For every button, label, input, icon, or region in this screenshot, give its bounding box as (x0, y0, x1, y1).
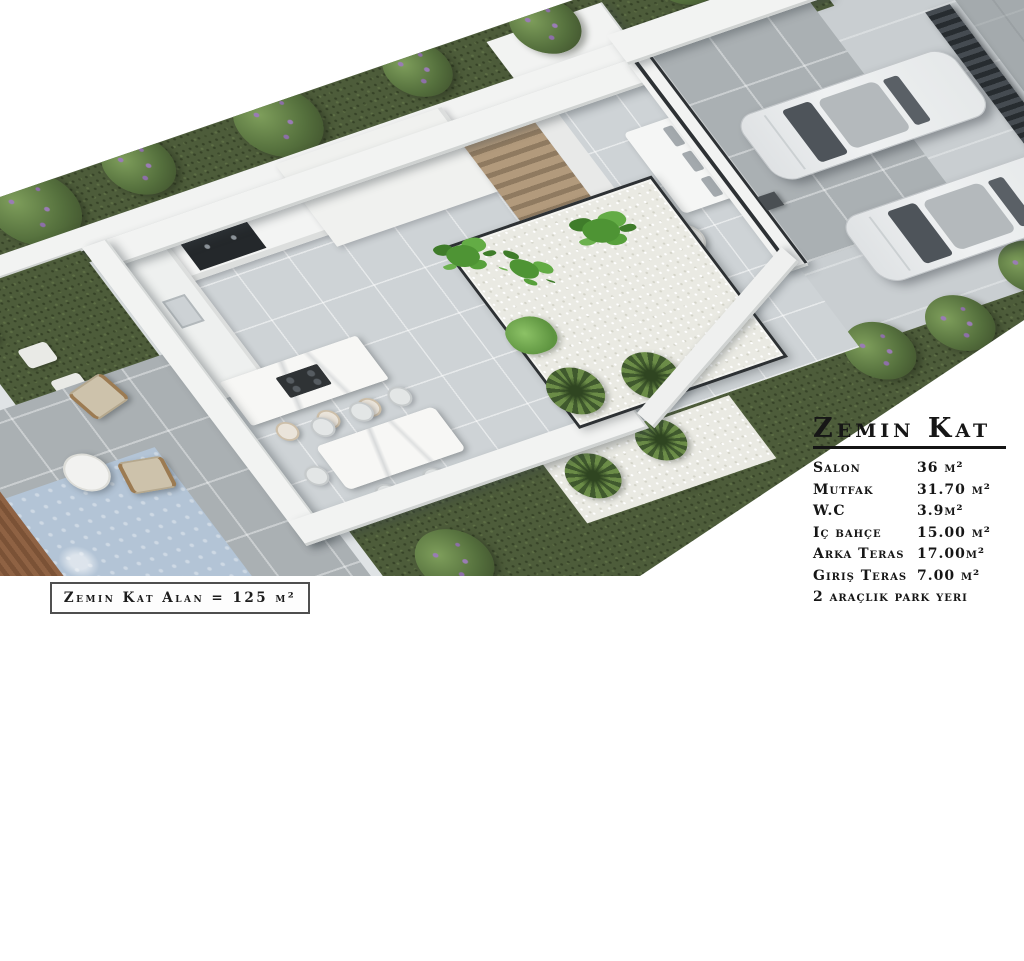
area-row-mutfak: Mutfak31.70 m² (813, 480, 1019, 502)
title-underline (813, 446, 1006, 449)
area-row-park: 2 araçlık park yeri (813, 587, 1019, 609)
area-row-icbahce: Iç bahçe15.00 m² (813, 523, 1019, 545)
area-row-wc: W.C3.9m² (813, 501, 1019, 523)
area-info-panel: Zemin Kat Salon36 m² Mutfak31.70 m² W.C3… (813, 414, 1019, 609)
area-rows: Salon36 m² Mutfak31.70 m² W.C3.9m² Iç ba… (813, 458, 1019, 609)
total-area-label: Zemin Kat Alan = 125 m² (50, 582, 310, 614)
panel-title: Zemin Kat (813, 414, 1019, 444)
area-row-arkateras: Arka Teras17.00m² (813, 544, 1019, 566)
area-row-giristeras: Giriş Teras7.00 m² (813, 566, 1019, 588)
total-area-text: Zemin Kat Alan = 125 m² (64, 590, 296, 606)
area-row-salon: Salon36 m² (813, 458, 1019, 480)
